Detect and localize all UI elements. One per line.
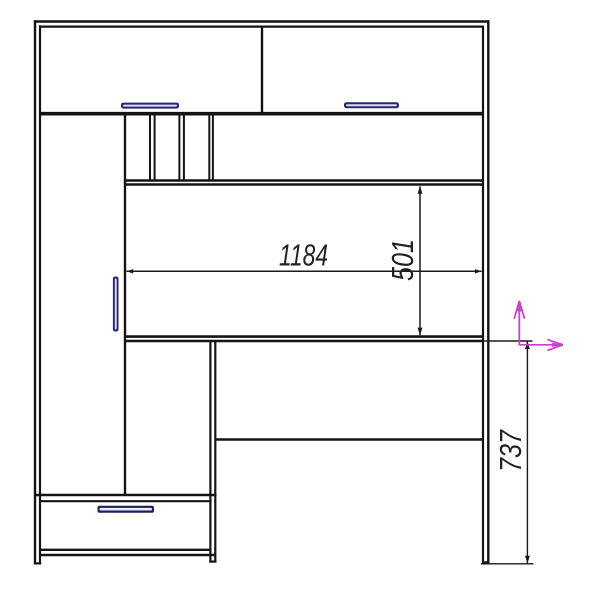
svg-text:501: 501	[385, 239, 420, 281]
svg-text:1184: 1184	[279, 238, 328, 273]
svg-text:737: 737	[493, 429, 528, 472]
